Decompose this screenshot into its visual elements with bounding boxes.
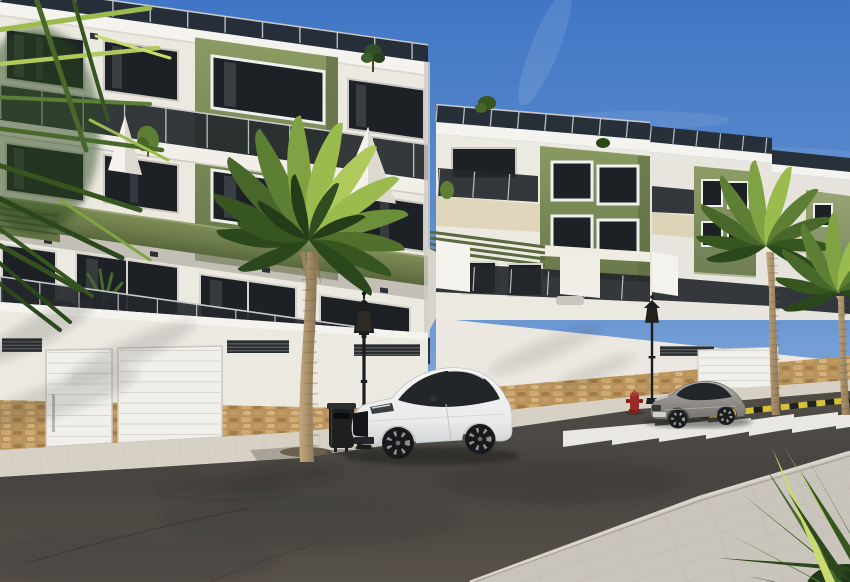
license-plate (653, 412, 666, 417)
balcony-plant (440, 181, 454, 199)
bin-slot (333, 413, 350, 419)
car-grille (353, 411, 368, 437)
architectural-render-scene: Sunny 3D architectural render of a moder… (0, 0, 850, 582)
car-grille (652, 405, 661, 411)
terrace-privacy-wall (560, 252, 600, 298)
rooftop-plant (596, 138, 610, 148)
render-canvas (0, 0, 850, 582)
license-plate (354, 437, 374, 444)
terrace-privacy-wall (436, 240, 470, 292)
side-mirror (429, 396, 437, 401)
outdoor-sofa (556, 296, 584, 305)
